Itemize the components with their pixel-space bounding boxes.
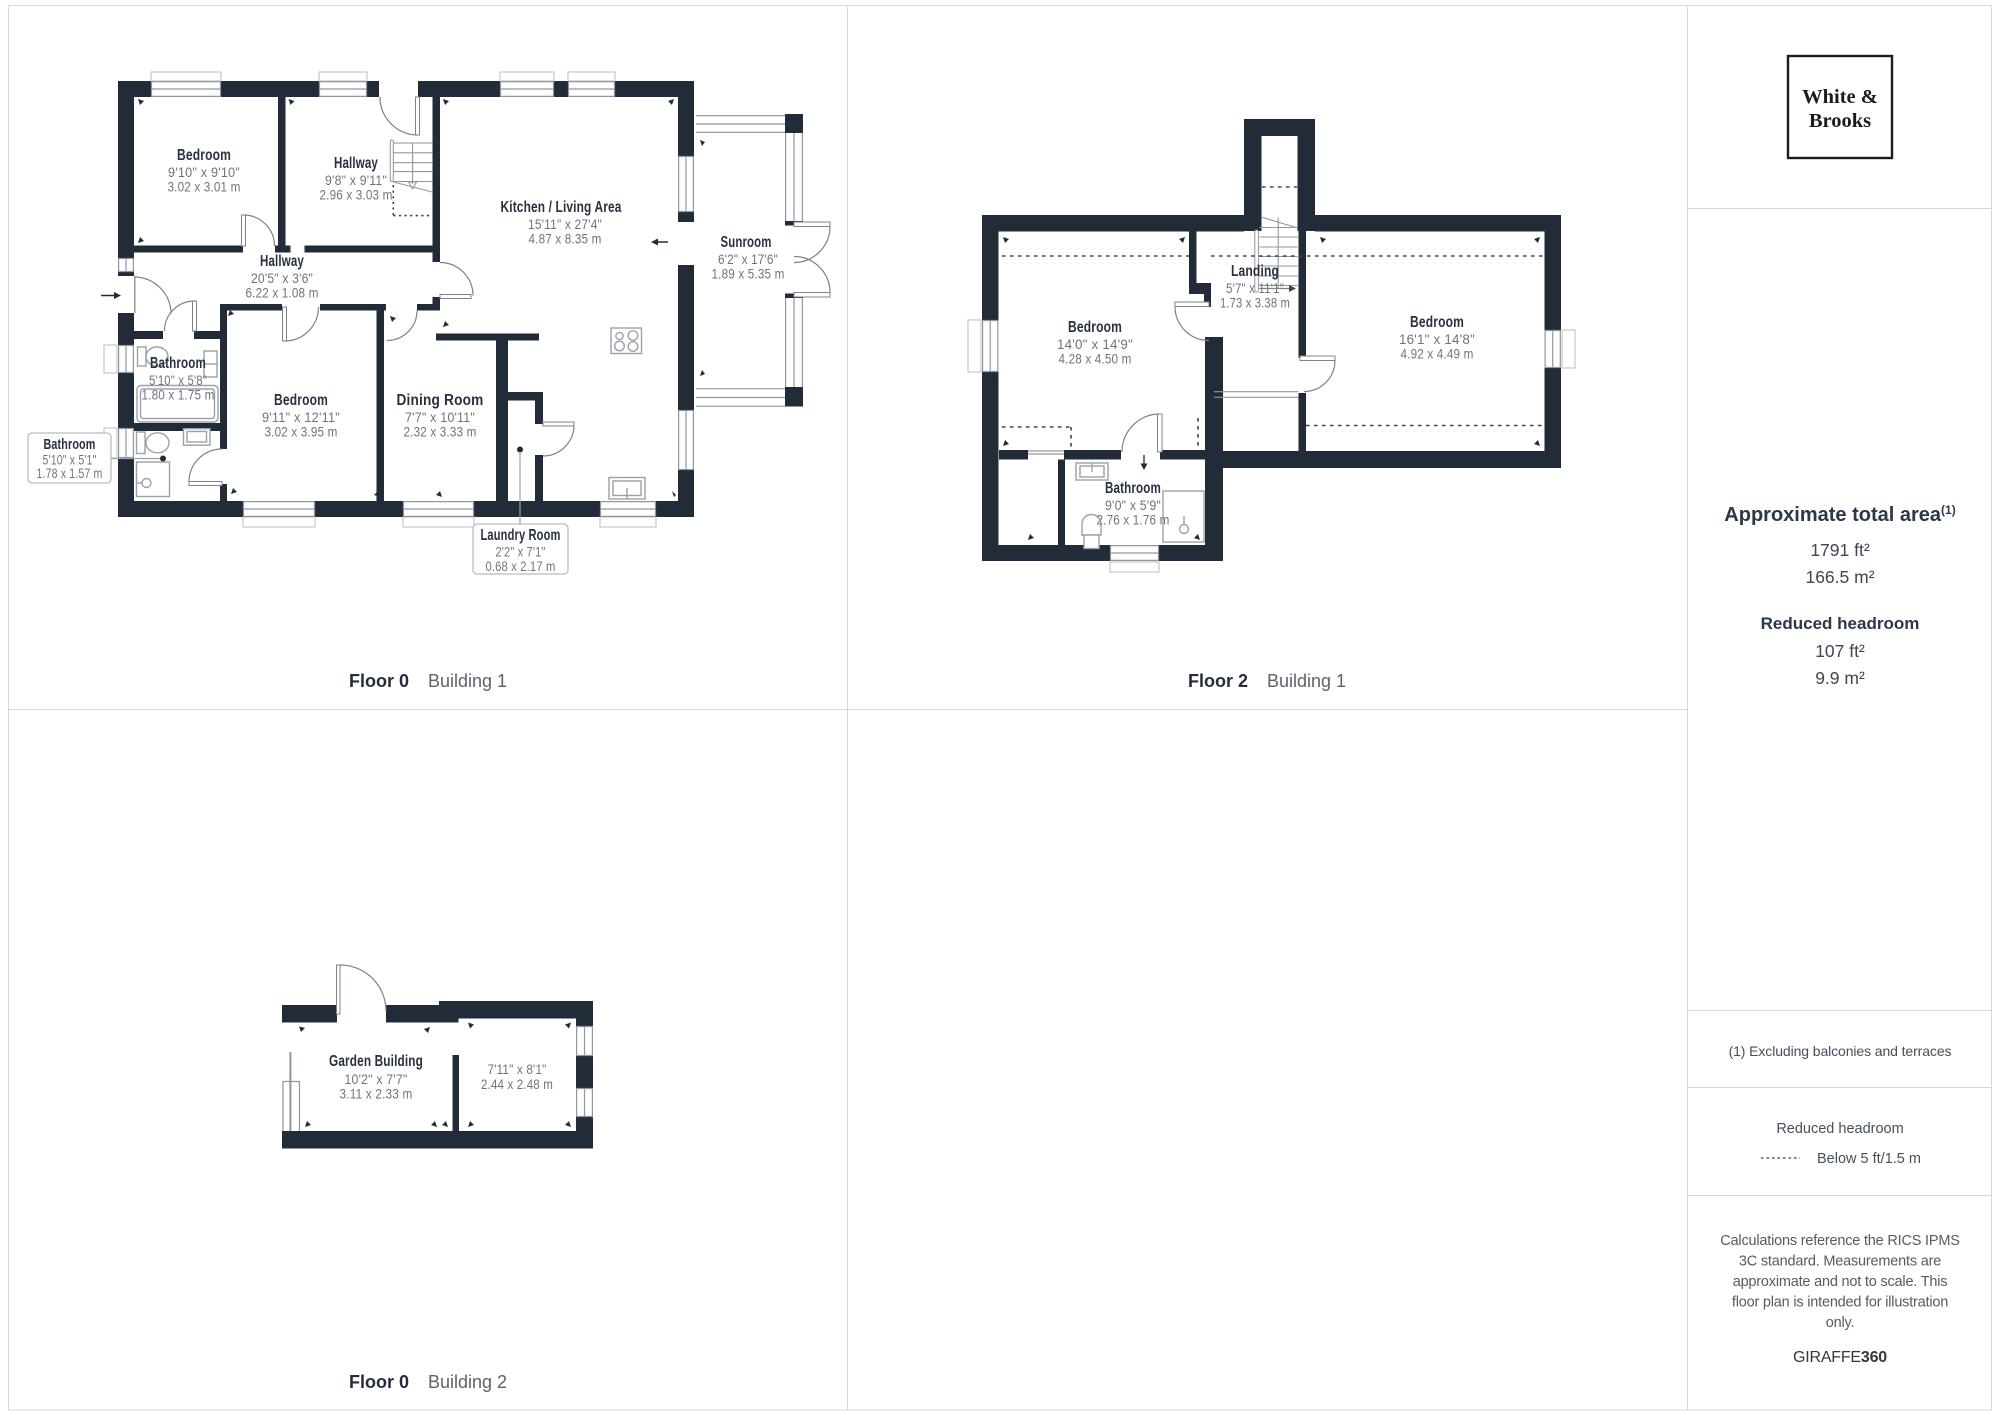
svg-text:approximate and not to scale.: approximate and not to scale. This [1733, 1274, 1948, 1290]
svg-text:Calculations reference the RIC: Calculations reference the RICS IPMS [1720, 1233, 1959, 1249]
svg-text:Bedroom: Bedroom [177, 147, 231, 164]
svg-text:2.76 x 1.76 m: 2.76 x 1.76 m [1097, 512, 1170, 528]
svg-text:1.89 x 5.35 m: 1.89 x 5.35 m [712, 266, 785, 282]
svg-text:Floor 0 Building 2: Floor 0 Building 2 [349, 1372, 507, 1392]
svg-text:Laundry Room: Laundry Room [481, 527, 561, 544]
svg-text:Below 5 ft/1.5 m: Below 5 ft/1.5 m [1817, 1151, 1921, 1167]
svg-text:107 ft²: 107 ft² [1815, 641, 1865, 661]
svg-text:3.02 x 3.95 m: 3.02 x 3.95 m [265, 424, 338, 440]
svg-text:9.9 m²: 9.9 m² [1815, 668, 1865, 688]
svg-text:Floor 0 Building 1: Floor 0 Building 1 [349, 671, 507, 691]
svg-text:1791 ft²: 1791 ft² [1810, 540, 1870, 560]
svg-text:Bathroom: Bathroom [150, 355, 206, 372]
svg-text:Hallway: Hallway [260, 253, 304, 270]
svg-text:GIRAFFE360: GIRAFFE360 [1793, 1349, 1887, 1366]
svg-text:White &: White & [1802, 86, 1878, 108]
svg-text:Dining Room: Dining Room [397, 392, 484, 409]
svg-text:4.87 x 8.35 m: 4.87 x 8.35 m [529, 231, 602, 247]
svg-text:Garden Building: Garden Building [329, 1053, 423, 1070]
svg-text:Floor 2 Building 1: Floor 2 Building 1 [1188, 671, 1346, 691]
svg-text:Hallway: Hallway [334, 155, 378, 172]
svg-text:Kitchen / Living Area: Kitchen / Living Area [501, 199, 622, 216]
svg-text:1.73 x 3.38 m: 1.73 x 3.38 m [1220, 295, 1290, 311]
svg-text:floor plan is intended for ill: floor plan is intended for illustration [1732, 1295, 1948, 1311]
svg-text:3C standard. Measurements are: 3C standard. Measurements are [1739, 1254, 1941, 1270]
svg-text:4.28 x 4.50 m: 4.28 x 4.50 m [1059, 351, 1132, 367]
svg-text:166.5 m²: 166.5 m² [1805, 567, 1874, 587]
svg-text:6.22 x 1.08 m: 6.22 x 1.08 m [246, 285, 319, 301]
svg-text:only.: only. [1826, 1315, 1855, 1331]
svg-text:0.68 x 2.17 m: 0.68 x 2.17 m [486, 558, 556, 574]
svg-text:3.11 x 2.33 m: 3.11 x 2.33 m [340, 1086, 413, 1102]
svg-text:1.80 x 1.75 m: 1.80 x 1.75 m [142, 387, 215, 403]
svg-text:Bedroom: Bedroom [1068, 319, 1122, 336]
svg-text:Bedroom: Bedroom [1410, 314, 1464, 331]
svg-text:(1) Excluding balconies and te: (1) Excluding balconies and terraces [1729, 1043, 1952, 1059]
svg-text:Reduced headroom: Reduced headroom [1761, 614, 1920, 633]
svg-text:4.92 x 4.49 m: 4.92 x 4.49 m [1401, 346, 1474, 362]
svg-text:Bathroom: Bathroom [1105, 480, 1161, 497]
svg-text:Brooks: Brooks [1809, 110, 1871, 132]
svg-text:7'11" x 8'1": 7'11" x 8'1" [488, 1061, 547, 1077]
svg-text:Landing: Landing [1231, 263, 1279, 280]
svg-text:2.96 x 3.03 m: 2.96 x 3.03 m [320, 187, 393, 203]
svg-text:Bathroom: Bathroom [44, 436, 96, 453]
svg-text:1.78 x 1.57 m: 1.78 x 1.57 m [37, 465, 103, 481]
svg-text:2.44 x 2.48 m: 2.44 x 2.48 m [481, 1076, 553, 1092]
svg-text:Reduced headroom: Reduced headroom [1776, 1121, 1903, 1137]
svg-text:3.02 x 3.01 m: 3.02 x 3.01 m [168, 179, 241, 195]
svg-text:Approximate total area(1): Approximate total area(1) [1724, 503, 1955, 526]
svg-text:Bedroom: Bedroom [274, 392, 328, 409]
svg-text:Sunroom: Sunroom [721, 234, 772, 251]
svg-text:2.32 x 3.33 m: 2.32 x 3.33 m [404, 424, 477, 440]
